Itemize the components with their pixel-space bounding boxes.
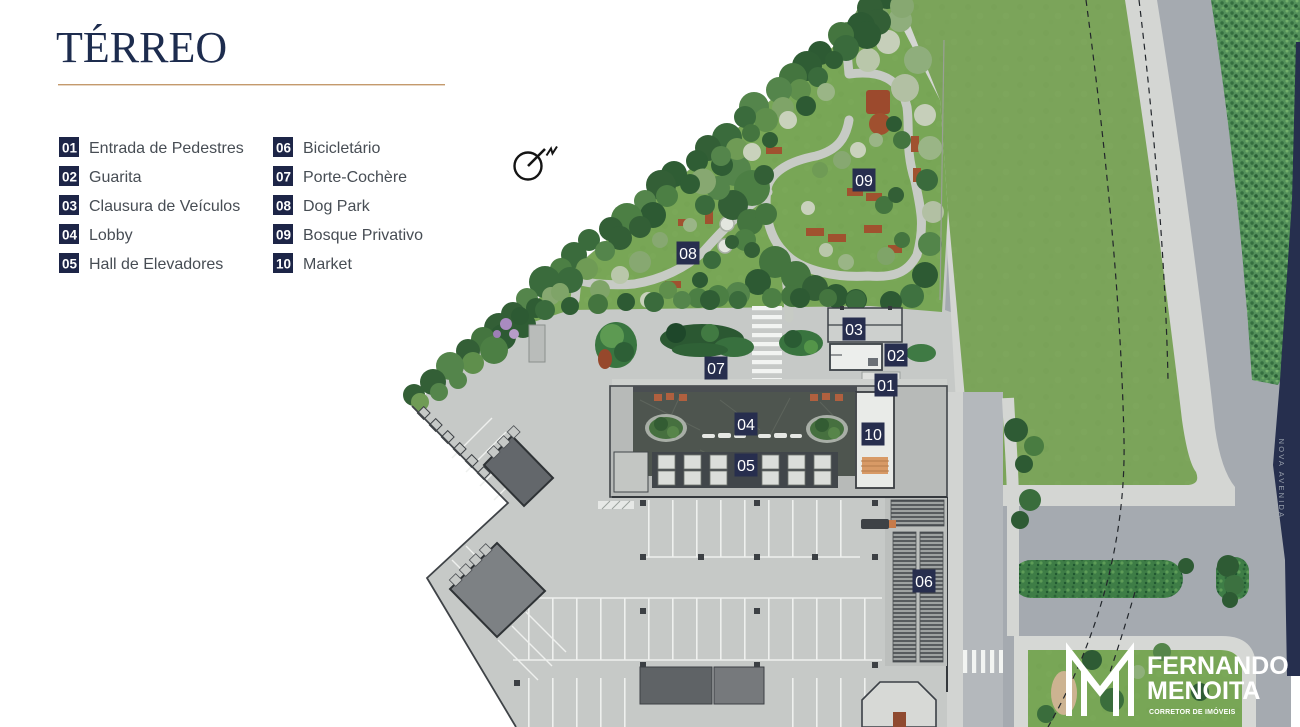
svg-text:Entrada de Pedestres: Entrada de Pedestres — [89, 140, 244, 157]
svg-text:05: 05 — [62, 257, 78, 272]
svg-text:01: 01 — [877, 378, 895, 395]
svg-text:Guarita: Guarita — [89, 169, 142, 186]
svg-text:06: 06 — [915, 574, 933, 591]
svg-text:05: 05 — [737, 458, 755, 475]
svg-text:10: 10 — [276, 257, 291, 272]
svg-text:04: 04 — [737, 417, 755, 434]
svg-text:02: 02 — [62, 170, 77, 185]
svg-text:TÉRREO: TÉRREO — [56, 23, 227, 72]
svg-text:Porte-Cochère: Porte-Cochère — [303, 169, 407, 186]
svg-text:03: 03 — [62, 199, 78, 214]
svg-text:01: 01 — [62, 141, 78, 156]
svg-text:CORRETOR DE IMÓVEIS: CORRETOR DE IMÓVEIS — [1149, 707, 1236, 716]
svg-text:06: 06 — [276, 141, 292, 156]
svg-text:Bicicletário: Bicicletário — [303, 140, 380, 157]
svg-text:03: 03 — [845, 322, 863, 339]
svg-text:Market: Market — [303, 256, 352, 273]
svg-text:09: 09 — [276, 228, 291, 243]
svg-text:07: 07 — [276, 170, 291, 185]
svg-text:FERNANDO: FERNANDO — [1147, 652, 1289, 680]
svg-text:Clausura de Veículos: Clausura de Veículos — [89, 198, 240, 215]
svg-text:NOVA AVENIDA: NOVA AVENIDA — [1277, 439, 1286, 520]
svg-text:08: 08 — [276, 199, 292, 214]
svg-text:MENOITA: MENOITA — [1147, 677, 1260, 705]
svg-text:09: 09 — [855, 173, 873, 190]
svg-text:Dog Park: Dog Park — [303, 198, 371, 215]
svg-text:Hall de Elevadores: Hall de Elevadores — [89, 256, 223, 273]
svg-text:04: 04 — [62, 228, 78, 243]
svg-text:Lobby: Lobby — [89, 227, 133, 244]
svg-text:07: 07 — [707, 361, 725, 378]
svg-text:Bosque Privativo: Bosque Privativo — [303, 227, 423, 244]
svg-text:08: 08 — [679, 246, 697, 263]
svg-text:02: 02 — [887, 348, 905, 365]
svg-text:10: 10 — [864, 427, 882, 444]
